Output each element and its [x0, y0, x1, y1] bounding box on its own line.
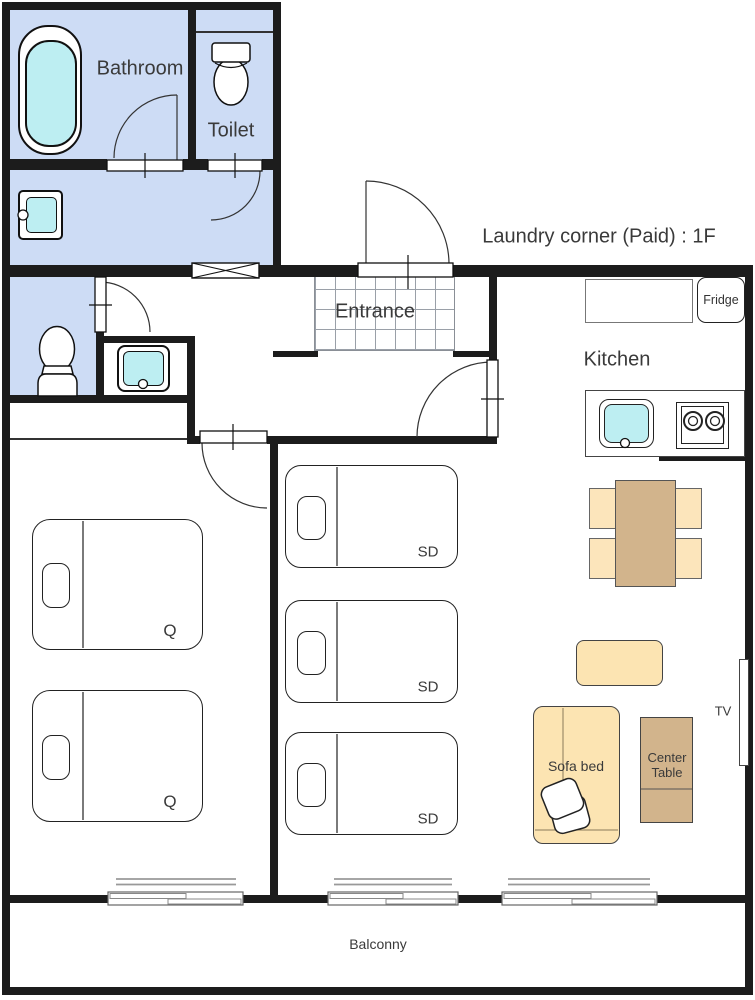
room-label-kitchen: Kitchen — [584, 349, 651, 372]
sofa-bed-label: Sofa bed — [548, 758, 604, 774]
wall-washbasin-top — [96, 336, 194, 343]
washbasin-bowl — [123, 351, 164, 386]
dining-chair — [589, 538, 616, 579]
wall-bath-toilet-divider — [188, 8, 196, 165]
room-label-bathroom: Bathroom — [97, 58, 184, 81]
wall-balcony — [2, 895, 753, 903]
wall-bathroom-bottom — [262, 159, 273, 170]
pillow — [297, 496, 326, 540]
wall-bedroom-top — [267, 436, 497, 444]
stove-top — [681, 406, 724, 444]
wall-bedroom-divider — [270, 436, 278, 903]
wall-bedroom-top — [187, 436, 200, 444]
wall-bathroom-bottom — [8, 159, 107, 170]
wall-corridor-left — [187, 336, 195, 444]
room-label-toilet: Toilet — [208, 120, 255, 143]
bed-label-q2: Q — [163, 792, 176, 812]
center-table-label: Center Table — [641, 751, 693, 781]
note-laundry-corner: Laundry corner (Paid) : 1F — [482, 226, 715, 249]
wall-toilet2-bottom — [2, 395, 194, 403]
pillow — [297, 763, 326, 807]
dining-chair — [675, 538, 702, 579]
bed-label-sd2: SD — [418, 679, 439, 696]
pillow — [297, 631, 326, 675]
shower-pan-basin — [26, 197, 57, 233]
wall-hall-stub-left — [273, 351, 318, 357]
toilet-shelf-line — [196, 31, 273, 33]
tv — [739, 659, 749, 766]
dining-chair — [589, 488, 616, 529]
room-toilet-2 — [10, 277, 96, 395]
room-label-entrance: Entrance — [335, 301, 415, 324]
wall-bathroom-bottom — [183, 159, 208, 170]
pillow — [42, 735, 70, 780]
dining-table — [615, 480, 676, 587]
fridge: Fridge — [697, 277, 745, 323]
dining-chair — [675, 488, 702, 529]
door-living — [417, 360, 504, 437]
wall-bath-block-right — [273, 2, 281, 277]
kitchen-sink-bowl — [604, 404, 649, 443]
bed-label-sd1: SD — [418, 544, 439, 561]
wall-hall-stub-right — [453, 351, 497, 357]
ottoman — [576, 640, 663, 686]
kitchen-counter — [585, 279, 693, 323]
bed-label-q1: Q — [163, 621, 176, 641]
wall-entrance-top-left — [281, 265, 360, 277]
tv-label: TV — [715, 704, 732, 719]
door-bedroom — [200, 424, 267, 508]
wall-bottom-outer — [2, 987, 753, 995]
wall-washroom-bottom — [2, 265, 273, 277]
door-toilet-2 — [89, 277, 150, 332]
wall-top-outer — [2, 2, 281, 10]
sofa-bed — [533, 706, 620, 844]
wall-right-outer — [745, 265, 753, 995]
bathtub-water — [25, 40, 77, 147]
wall-kitchen-top — [453, 265, 753, 277]
wall-hall-right — [489, 277, 497, 362]
bed-label-sd3: SD — [418, 811, 439, 828]
wall-left-outer — [2, 2, 10, 995]
floor-plan: Fridge — [0, 0, 755, 1000]
fridge-label: Fridge — [703, 293, 738, 307]
balcony-label: Balconny — [349, 936, 407, 952]
closet-front-line — [10, 438, 187, 440]
curtain-rail-lines — [116, 879, 650, 885]
pillow — [42, 563, 70, 608]
